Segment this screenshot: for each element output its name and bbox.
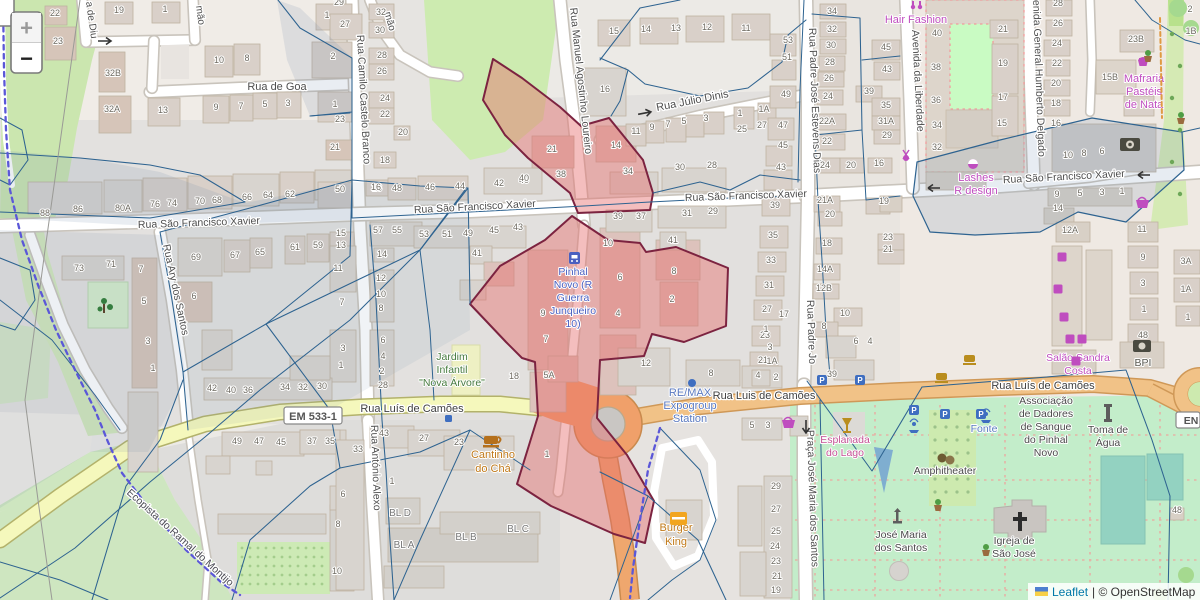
svg-text:45: 45: [489, 225, 499, 235]
svg-text:27: 27: [757, 120, 767, 130]
svg-text:3: 3: [767, 342, 772, 352]
svg-text:5: 5: [262, 99, 267, 109]
svg-text:1: 1: [1185, 312, 1190, 322]
svg-text:16: 16: [371, 182, 381, 192]
svg-text:12: 12: [702, 22, 712, 32]
svg-text:BL B: BL B: [455, 532, 477, 543]
svg-text:39: 39: [827, 369, 837, 379]
svg-text:10: 10: [214, 55, 224, 65]
svg-text:14: 14: [1053, 203, 1063, 213]
svg-text:25: 25: [737, 124, 747, 134]
svg-text:17: 17: [779, 309, 789, 319]
svg-text:Pinhal: Pinhal: [558, 266, 587, 278]
svg-text:7: 7: [138, 264, 143, 274]
svg-text:35: 35: [768, 230, 778, 240]
svg-text:39: 39: [613, 211, 623, 221]
svg-text:38: 38: [931, 62, 941, 72]
svg-text:30: 30: [317, 381, 327, 391]
svg-text:37: 37: [636, 211, 646, 221]
svg-text:69: 69: [191, 252, 201, 262]
svg-text:41: 41: [668, 235, 678, 245]
svg-text:19: 19: [114, 5, 124, 15]
svg-text:10): 10): [565, 318, 580, 330]
svg-text:36: 36: [243, 385, 253, 395]
svg-text:7: 7: [543, 334, 548, 344]
svg-text:22: 22: [50, 8, 60, 18]
svg-text:15B: 15B: [1102, 72, 1118, 82]
svg-text:31: 31: [764, 280, 774, 290]
svg-text:12: 12: [641, 358, 651, 368]
svg-text:6: 6: [340, 489, 345, 499]
svg-text:53: 53: [783, 35, 793, 45]
svg-text:Água: Água: [1096, 436, 1121, 449]
svg-text:10: 10: [376, 289, 386, 299]
svg-text:1: 1: [338, 360, 343, 370]
svg-text:71: 71: [106, 259, 116, 269]
svg-text:33: 33: [766, 255, 776, 265]
svg-text:15: 15: [609, 26, 619, 36]
svg-text:12A: 12A: [1062, 225, 1078, 235]
svg-text:39: 39: [770, 200, 780, 210]
svg-text:43: 43: [882, 64, 892, 74]
svg-text:5: 5: [141, 296, 146, 306]
svg-text:67: 67: [230, 250, 240, 260]
svg-text:21: 21: [772, 571, 782, 581]
svg-text:39: 39: [864, 86, 874, 96]
svg-text:1: 1: [162, 4, 167, 14]
svg-text:P: P: [978, 410, 984, 419]
svg-text:40: 40: [226, 385, 236, 395]
svg-text:do Pinhal: do Pinhal: [1024, 434, 1068, 446]
svg-text:16: 16: [874, 158, 884, 168]
svg-text:21: 21: [883, 244, 893, 254]
svg-text:55: 55: [392, 225, 402, 235]
svg-text:34: 34: [932, 120, 942, 130]
svg-text:12B: 12B: [816, 283, 832, 293]
svg-text:3: 3: [340, 343, 345, 353]
svg-text:32: 32: [932, 142, 942, 152]
svg-text:29: 29: [334, 0, 344, 7]
svg-text:Rua de Goa: Rua de Goa: [247, 81, 307, 93]
svg-text:88: 88: [40, 208, 50, 218]
svg-text:24: 24: [770, 541, 780, 551]
svg-text:42: 42: [494, 178, 504, 188]
svg-text:41: 41: [472, 248, 482, 258]
svg-text:do Chá: do Chá: [475, 463, 511, 475]
svg-text:14: 14: [377, 249, 387, 259]
svg-text:48: 48: [1172, 505, 1182, 515]
svg-text:28: 28: [707, 160, 717, 170]
svg-text:3: 3: [1099, 187, 1104, 197]
svg-text:6: 6: [191, 291, 196, 301]
svg-text:15: 15: [997, 118, 1007, 128]
svg-text:1: 1: [1119, 186, 1124, 196]
svg-text:24: 24: [820, 160, 830, 170]
svg-text:BL A: BL A: [394, 540, 415, 551]
svg-text:44: 44: [455, 181, 465, 191]
svg-text:49: 49: [463, 228, 473, 238]
svg-text:24: 24: [380, 93, 390, 103]
svg-text:8: 8: [671, 266, 676, 276]
svg-text:Novo (R: Novo (R: [554, 279, 593, 291]
svg-text:5: 5: [749, 420, 754, 430]
svg-text:43: 43: [513, 222, 523, 232]
svg-text:Associação: Associação: [1019, 395, 1073, 407]
svg-text:Rua Luis de Camões: Rua Luis de Camões: [713, 390, 816, 402]
svg-text:62: 62: [285, 189, 295, 199]
svg-text:José Maria: José Maria: [875, 529, 927, 541]
svg-text:13: 13: [671, 23, 681, 33]
svg-text:38: 38: [556, 169, 566, 179]
svg-text:57: 57: [373, 225, 383, 235]
svg-text:70: 70: [195, 196, 205, 206]
svg-text:53: 53: [419, 229, 429, 239]
svg-text:29: 29: [771, 481, 781, 491]
svg-text:21A: 21A: [817, 195, 833, 205]
svg-text:3: 3: [145, 336, 150, 346]
svg-text:6: 6: [853, 336, 858, 346]
svg-text:Rua Luís de Camões: Rua Luís de Camões: [991, 380, 1095, 392]
svg-text:18: 18: [822, 238, 832, 248]
svg-text:Jardim: Jardim: [436, 351, 468, 363]
svg-text:23B: 23B: [1128, 34, 1144, 44]
svg-text:61: 61: [290, 242, 300, 252]
svg-text:Rua Luís de Camões: Rua Luís de Camões: [360, 403, 464, 415]
svg-text:King: King: [665, 536, 687, 548]
svg-text:P: P: [942, 410, 948, 419]
svg-text:11: 11: [741, 23, 750, 33]
svg-text:de Dadores: de Dadores: [1019, 408, 1073, 420]
svg-text:Junqueiro: Junqueiro: [550, 305, 596, 317]
svg-text:10: 10: [1063, 150, 1073, 160]
svg-text:27: 27: [771, 504, 781, 514]
svg-text:25: 25: [771, 526, 781, 536]
svg-text:51: 51: [442, 229, 452, 239]
svg-text:28: 28: [378, 380, 388, 390]
svg-text:1: 1: [1141, 304, 1146, 314]
svg-text:76: 76: [150, 199, 160, 209]
svg-text:9: 9: [1140, 252, 1145, 262]
svg-text:18: 18: [509, 371, 519, 381]
svg-text:24: 24: [1052, 38, 1062, 48]
svg-text:20: 20: [825, 209, 835, 219]
svg-text:20: 20: [846, 160, 856, 170]
svg-text:1A: 1A: [1180, 284, 1191, 294]
svg-text:29: 29: [882, 130, 892, 140]
svg-text:45: 45: [276, 437, 286, 447]
svg-text:Station: Station: [673, 413, 707, 425]
svg-text:São José: São José: [992, 548, 1036, 560]
svg-text:47: 47: [254, 436, 264, 446]
svg-text:80A: 80A: [115, 203, 131, 213]
svg-text:30: 30: [675, 162, 685, 172]
svg-text:49: 49: [232, 436, 242, 446]
svg-text:6: 6: [1099, 146, 1104, 156]
svg-text:9: 9: [213, 102, 218, 112]
svg-text:23: 23: [53, 36, 63, 46]
svg-text:13: 13: [158, 105, 168, 115]
svg-text:RE/MAX: RE/MAX: [669, 387, 712, 399]
svg-text:P: P: [911, 406, 917, 415]
svg-text:Novo: Novo: [1034, 447, 1059, 459]
svg-text:Cantinho: Cantinho: [471, 449, 515, 461]
svg-text:10: 10: [332, 566, 342, 576]
svg-text:6: 6: [380, 335, 385, 345]
svg-text:21: 21: [998, 24, 1008, 34]
svg-text:8: 8: [708, 368, 713, 378]
svg-text:4: 4: [615, 308, 620, 318]
svg-text:23: 23: [883, 232, 893, 242]
svg-text:2: 2: [330, 51, 335, 61]
svg-text:65: 65: [255, 247, 265, 257]
svg-text:Expogroup: Expogroup: [663, 400, 716, 412]
svg-text:48: 48: [392, 183, 402, 193]
svg-text:EM 533-1: EM 533-1: [289, 411, 337, 423]
svg-text:1: 1: [324, 10, 329, 20]
svg-text:17: 17: [998, 92, 1008, 102]
svg-text:11: 11: [333, 263, 342, 273]
svg-text:1: 1: [763, 324, 768, 334]
svg-text:do Lago: do Lago: [826, 447, 864, 459]
svg-text:de Sangue: de Sangue: [1021, 421, 1072, 433]
svg-text:40: 40: [932, 28, 942, 38]
svg-text:9: 9: [1054, 189, 1059, 199]
svg-text:14: 14: [611, 140, 621, 150]
svg-text:8: 8: [378, 303, 383, 313]
svg-text:46: 46: [425, 182, 435, 192]
svg-text:32B: 32B: [105, 68, 121, 78]
svg-text:Infantil: Infantil: [437, 364, 468, 376]
svg-text:−: −: [20, 46, 33, 71]
svg-text:45: 45: [881, 42, 891, 52]
svg-text:20: 20: [1051, 78, 1061, 88]
svg-text:73: 73: [74, 263, 84, 273]
svg-text:5: 5: [1077, 188, 1082, 198]
svg-text:Pastéis: Pastéis: [1126, 86, 1163, 98]
svg-text:Costa: Costa: [1064, 365, 1092, 377]
svg-text:68: 68: [212, 195, 222, 205]
svg-text:7: 7: [339, 297, 344, 307]
svg-text:P: P: [857, 376, 863, 385]
svg-text:2: 2: [669, 294, 674, 304]
svg-text:7: 7: [238, 101, 243, 111]
svg-text:Amphitheater: Amphitheater: [914, 465, 977, 477]
svg-text:43: 43: [379, 428, 389, 438]
svg-text:34: 34: [827, 6, 837, 16]
svg-text:3: 3: [285, 98, 290, 108]
svg-text:74: 74: [167, 198, 177, 208]
svg-text:59: 59: [313, 240, 323, 250]
svg-text:11: 11: [631, 126, 640, 136]
svg-text:2: 2: [1187, 4, 1192, 14]
svg-text:dos Santos: dos Santos: [875, 542, 928, 554]
svg-text:22A: 22A: [819, 116, 835, 126]
svg-text:36: 36: [931, 95, 941, 105]
svg-text:34: 34: [623, 166, 633, 176]
svg-text:37: 37: [307, 436, 317, 446]
svg-text:8: 8: [821, 321, 826, 331]
svg-text:1: 1: [737, 108, 742, 118]
svg-text:4: 4: [380, 351, 385, 361]
svg-text:4: 4: [867, 336, 872, 346]
svg-text:6: 6: [617, 272, 622, 282]
svg-text:3A: 3A: [1180, 256, 1191, 266]
svg-text:16: 16: [1051, 118, 1061, 128]
svg-text:28: 28: [1053, 0, 1063, 8]
svg-text:BL D: BL D: [389, 508, 411, 519]
svg-text:24: 24: [823, 91, 833, 101]
svg-text:30: 30: [826, 40, 836, 50]
svg-text:47: 47: [778, 120, 788, 130]
svg-text:9: 9: [540, 308, 545, 318]
svg-text:8: 8: [244, 53, 249, 63]
svg-text:26: 26: [1053, 18, 1063, 28]
svg-text:42: 42: [207, 383, 217, 393]
svg-text:5A: 5A: [543, 370, 554, 380]
svg-text:8: 8: [1081, 148, 1086, 158]
svg-text:28: 28: [377, 50, 387, 60]
svg-text:de Nata: de Nata: [1125, 99, 1164, 111]
svg-text:19: 19: [771, 585, 781, 595]
svg-text:45: 45: [778, 140, 788, 150]
svg-text:1: 1: [332, 99, 337, 109]
svg-text:Leaflet: Leaflet: [1052, 585, 1089, 599]
svg-text:64: 64: [263, 190, 273, 200]
svg-text:32: 32: [827, 24, 837, 34]
svg-text:R design: R design: [954, 185, 997, 197]
svg-text:14: 14: [641, 24, 651, 34]
svg-text:Hair Fashion: Hair Fashion: [885, 14, 947, 26]
svg-text:1: 1: [150, 363, 155, 373]
svg-text:8: 8: [335, 519, 340, 529]
svg-text:35: 35: [881, 100, 891, 110]
svg-text:EN: EN: [1184, 415, 1199, 427]
svg-text:Fonte: Fonte: [971, 423, 998, 435]
svg-text:23: 23: [454, 437, 464, 447]
svg-text:31A: 31A: [878, 116, 894, 126]
svg-text:26: 26: [377, 66, 387, 76]
svg-text:1A: 1A: [758, 104, 769, 114]
svg-text:Esplanada: Esplanada: [820, 434, 870, 446]
svg-text:26: 26: [824, 73, 834, 83]
svg-text:49: 49: [781, 89, 791, 99]
svg-text:43: 43: [776, 162, 786, 172]
svg-text:66: 66: [242, 192, 252, 202]
svg-text:22: 22: [380, 109, 390, 119]
svg-text:3: 3: [765, 420, 770, 430]
svg-text:Lashes: Lashes: [958, 172, 994, 184]
svg-text:11: 11: [1137, 224, 1146, 234]
svg-text:9: 9: [649, 122, 654, 132]
svg-text:28: 28: [825, 57, 835, 67]
svg-text:BPI: BPI: [1135, 357, 1152, 369]
svg-text:35: 35: [325, 436, 335, 446]
svg-text:10: 10: [603, 238, 613, 248]
svg-text:1: 1: [544, 449, 549, 459]
svg-text:| © OpenStreetMap: | © OpenStreetMap: [1092, 585, 1196, 599]
svg-text:20: 20: [398, 127, 408, 137]
svg-text:P: P: [819, 376, 825, 385]
svg-text:51: 51: [782, 52, 792, 62]
svg-text:23: 23: [335, 114, 345, 124]
svg-text:BL C: BL C: [507, 524, 529, 535]
svg-text:31: 31: [682, 208, 692, 218]
svg-text:29: 29: [708, 206, 718, 216]
svg-text:13: 13: [336, 240, 346, 250]
svg-text:19: 19: [998, 58, 1008, 68]
svg-text:Rua Padre Jo: Rua Padre Jo: [804, 300, 818, 365]
svg-text:Igreja de: Igreja de: [994, 535, 1035, 547]
svg-text:48: 48: [1138, 330, 1148, 340]
svg-text:16: 16: [600, 84, 610, 94]
svg-text:2: 2: [379, 366, 384, 376]
svg-text:2: 2: [773, 372, 778, 382]
svg-text:32: 32: [298, 382, 308, 392]
svg-text:32A: 32A: [104, 104, 120, 114]
svg-text:23: 23: [771, 556, 781, 566]
svg-text:27: 27: [762, 304, 772, 314]
svg-text:21: 21: [330, 142, 340, 152]
svg-text:18: 18: [380, 155, 390, 165]
svg-text:15: 15: [336, 228, 346, 238]
svg-text:10: 10: [840, 308, 850, 318]
svg-text:1B: 1B: [1185, 26, 1196, 36]
svg-text:Mafraria: Mafraria: [1124, 73, 1165, 85]
svg-text:50: 50: [335, 184, 345, 194]
svg-text:Toma de: Toma de: [1088, 424, 1128, 436]
svg-text:+: +: [20, 16, 33, 41]
svg-text:12: 12: [376, 273, 386, 283]
svg-text:1A: 1A: [766, 356, 777, 366]
svg-text:4: 4: [755, 370, 760, 380]
svg-text:86: 86: [73, 204, 83, 214]
svg-text:14A: 14A: [817, 264, 833, 274]
svg-text:21: 21: [547, 144, 557, 154]
svg-text:33: 33: [353, 444, 363, 454]
svg-text:40: 40: [519, 173, 529, 183]
svg-text:3: 3: [703, 113, 708, 123]
svg-text:32: 32: [376, 7, 386, 17]
svg-text:1: 1: [389, 476, 394, 486]
svg-text:5: 5: [681, 116, 686, 126]
svg-text:27: 27: [340, 19, 350, 29]
svg-text:34: 34: [280, 382, 290, 392]
svg-text:7: 7: [665, 119, 670, 129]
svg-text:18: 18: [1051, 98, 1061, 108]
svg-text:3: 3: [1140, 278, 1145, 288]
svg-text:30: 30: [375, 25, 385, 35]
svg-text:27: 27: [419, 433, 429, 443]
svg-text:22: 22: [1052, 58, 1062, 68]
svg-text:Guerra: Guerra: [557, 292, 590, 304]
svg-text:19: 19: [879, 196, 889, 206]
svg-text:"Nova Árvore": "Nova Árvore": [419, 376, 485, 389]
svg-text:22: 22: [822, 136, 832, 146]
